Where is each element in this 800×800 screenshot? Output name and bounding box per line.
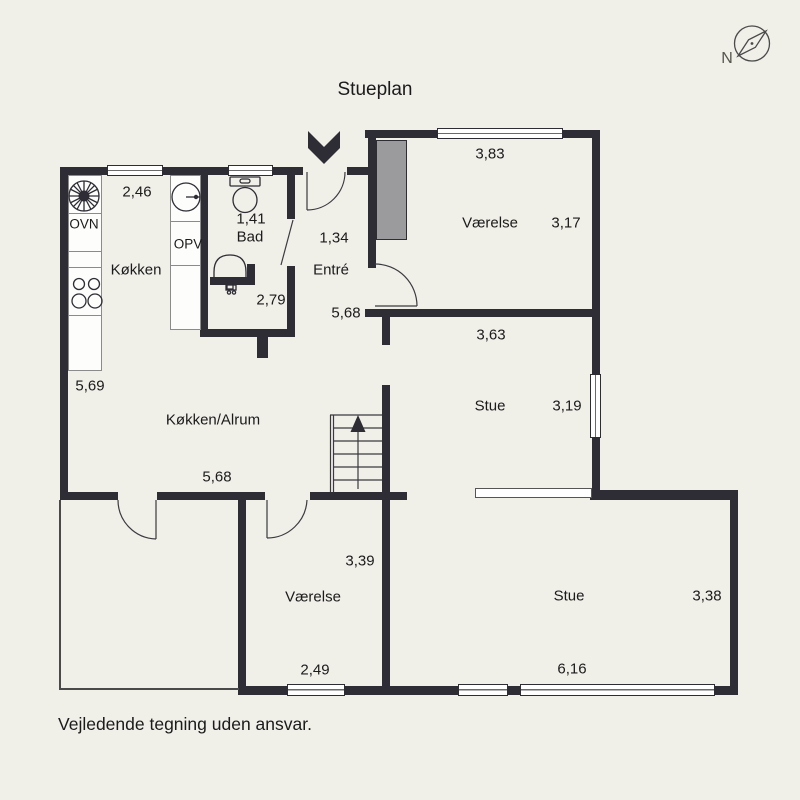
window xyxy=(287,684,345,696)
room-label-koekken: Køkken xyxy=(111,262,162,279)
room-label-vaerelse-top: Værelse xyxy=(462,215,518,232)
terrace-door xyxy=(118,500,156,539)
stairs xyxy=(330,415,382,492)
dim-stue-mid-width: 3,63 xyxy=(476,327,505,344)
dim-vaerelse-low-height: 3,39 xyxy=(345,553,374,570)
compass-icon xyxy=(735,26,770,61)
dim-koekken-width: 2,46 xyxy=(122,184,151,201)
window xyxy=(437,128,563,139)
wall xyxy=(382,385,390,695)
shower-partition xyxy=(247,264,255,285)
wardrobe xyxy=(376,140,407,240)
wall xyxy=(60,492,118,500)
dishwasher-label: OPV xyxy=(174,237,203,252)
wall xyxy=(238,686,287,695)
sideboard xyxy=(475,488,592,498)
room-label-vaerelse-low: Værelse xyxy=(285,589,341,606)
dim-bad-width: 1,41 xyxy=(236,211,265,228)
wall xyxy=(592,438,600,490)
kitchen-counter-mid xyxy=(170,175,201,330)
dim-stue-mid-depth: 3,19 xyxy=(552,398,581,415)
window xyxy=(458,684,508,696)
oven-label: OVN xyxy=(69,217,98,232)
wall xyxy=(200,175,208,337)
wall xyxy=(365,309,600,317)
dim-bad-depth: 2,79 xyxy=(256,292,285,309)
wall xyxy=(508,686,520,695)
stairs-up-arrow-icon xyxy=(351,415,366,489)
disclaimer-text: Vejledende tegning uden ansvar. xyxy=(58,714,312,735)
dim-stue-low-width: 6,16 xyxy=(557,661,586,678)
wall xyxy=(368,130,376,268)
bathroom-door xyxy=(281,220,293,265)
wall xyxy=(382,317,390,345)
bedroom-top-door xyxy=(375,264,417,306)
wall xyxy=(730,490,738,695)
dim-vaerelse-low-width: 2,49 xyxy=(300,662,329,679)
dim-koekken-alrum-height: 5,69 xyxy=(75,378,104,395)
wall xyxy=(257,337,268,358)
wall xyxy=(310,492,407,500)
room-label-entre: Entré xyxy=(313,262,349,279)
floor-drain-icon xyxy=(226,285,236,294)
wall xyxy=(287,175,295,219)
window xyxy=(228,165,273,176)
wall xyxy=(592,130,600,375)
dim-vaerelse-top-width: 3,83 xyxy=(475,146,504,163)
window xyxy=(520,684,715,696)
terrace-outline xyxy=(59,500,61,690)
room-label-stue-low: Stue xyxy=(554,588,585,605)
wall xyxy=(590,490,738,500)
entrance-arrow-icon xyxy=(308,131,340,164)
window xyxy=(590,374,601,438)
dim-koekken-alrum-width: 5,68 xyxy=(202,469,231,486)
wall xyxy=(163,167,228,175)
room-label-koekken-alrum: Køkken/Alrum xyxy=(166,412,260,429)
front-door xyxy=(307,172,345,210)
wall xyxy=(273,167,303,175)
kitchen-counter-left xyxy=(68,175,102,371)
compass-north-label: N xyxy=(721,50,733,68)
wall xyxy=(238,492,246,695)
wall xyxy=(200,329,295,337)
dim-entre-width: 1,34 xyxy=(319,230,348,247)
wall xyxy=(715,686,738,695)
room-label-stue-mid: Stue xyxy=(475,398,506,415)
dim-entre-depth: 5,68 xyxy=(331,305,360,322)
dim-vaerelse-top-depth: 3,17 xyxy=(551,215,580,232)
wall xyxy=(287,266,295,337)
bedroom-low-door xyxy=(267,500,307,538)
wall xyxy=(157,492,265,500)
dim-stue-low-height: 3,38 xyxy=(692,588,721,605)
wall xyxy=(60,167,68,500)
room-label-bad: Bad xyxy=(237,229,264,246)
wall xyxy=(345,686,392,695)
terrace-outline xyxy=(59,688,239,690)
wall xyxy=(365,130,437,138)
toilet-icon xyxy=(230,177,260,213)
wall xyxy=(60,167,109,175)
wall xyxy=(391,686,458,695)
floor-plan: Stueplan Vejledende tegning uden ansvar.… xyxy=(0,0,800,800)
page-title: Stueplan xyxy=(337,79,412,101)
window xyxy=(107,165,163,176)
